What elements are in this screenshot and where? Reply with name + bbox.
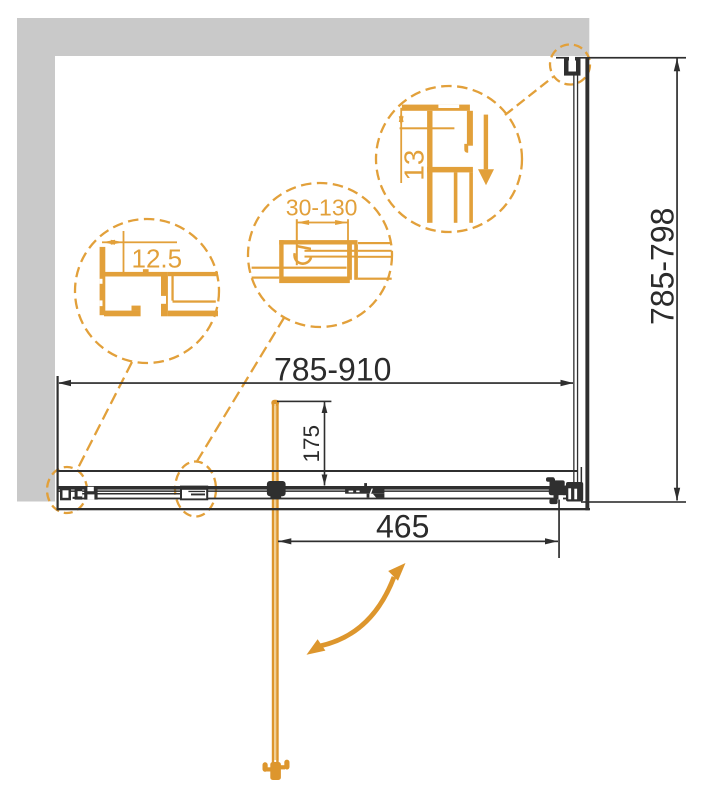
svg-text:465: 465 xyxy=(376,509,429,545)
svg-text:175: 175 xyxy=(299,425,324,463)
svg-text:12.5: 12.5 xyxy=(132,243,183,273)
svg-text:785-798: 785-798 xyxy=(645,208,681,325)
svg-text:785-910: 785-910 xyxy=(274,352,391,388)
svg-text:30-130: 30-130 xyxy=(286,195,358,221)
svg-text:13: 13 xyxy=(399,150,430,181)
